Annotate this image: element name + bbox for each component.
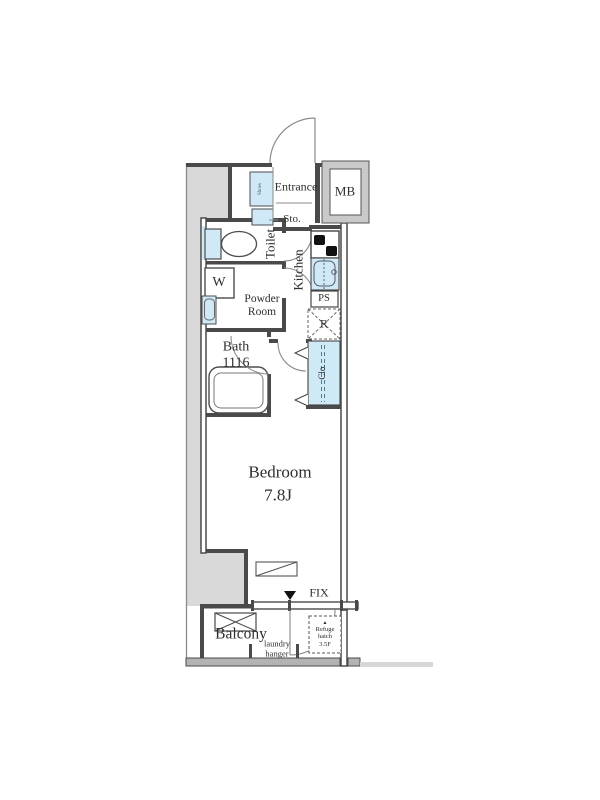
bathtub: [209, 336, 269, 413]
kitchen-sink: [311, 258, 339, 290]
right-wall-balcony: [341, 610, 347, 666]
pipe-space-box: [311, 291, 338, 307]
laundry-pole-support: [249, 644, 252, 658]
floor-plan-drawing: [0, 0, 600, 800]
closet-door-marker: [295, 347, 308, 359]
bedroom-door-arc: [278, 343, 306, 371]
right-wall: [341, 223, 347, 610]
meter-box: [322, 161, 369, 223]
refrigerator-space: [308, 309, 340, 339]
entrance-door: [270, 118, 315, 163]
refuge-hatch-label: ▲ Refuge hatch 3.5F: [309, 616, 341, 653]
toilet-door-arc: [284, 233, 312, 261]
floor-plan: Entrance MB Sto. Shoes Toilet W Powder R…: [0, 0, 600, 800]
closet-door-marker: [295, 394, 308, 406]
kitchen-stove: [311, 231, 339, 258]
storage-niche: [269, 203, 312, 220]
powder-door-arc: [284, 268, 314, 298]
laundry-pole-support: [296, 644, 299, 658]
washer-box: [205, 268, 234, 298]
shoe-cabinet: [250, 167, 273, 225]
toilet-fixture: [202, 226, 312, 261]
bedroom-counter: [256, 562, 297, 576]
closet: [295, 341, 340, 406]
window-marker-triangle: [284, 591, 296, 600]
